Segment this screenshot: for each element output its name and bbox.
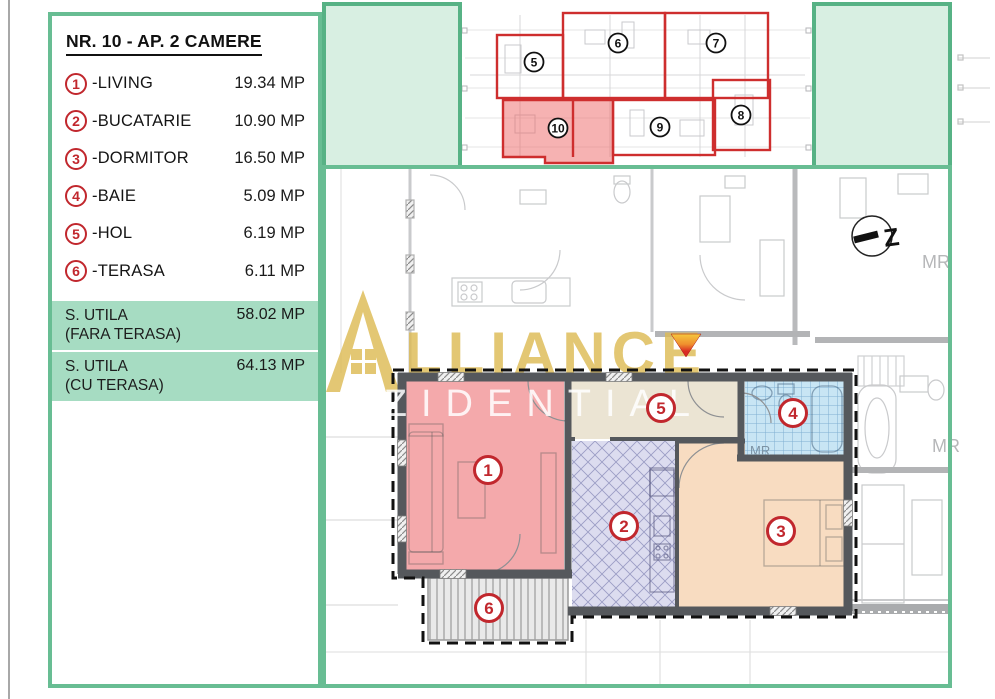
legend-row-terasa: 6 -TERASA 6.11 MP — [52, 253, 318, 291]
house-window-icon — [351, 349, 376, 374]
overview-unit-7-label: 7 — [713, 37, 720, 51]
legend-label-bucatarie: -BUCATARIE — [92, 112, 191, 131]
legend-value-baie: 5.09 MP — [244, 187, 305, 206]
total-label: S. UTILA — [65, 306, 181, 325]
legend-value-terasa: 6.11 MP — [245, 262, 305, 281]
rezidential-watermark-text: REZIDENTIAL — [303, 383, 704, 425]
mr-label-upper: MR — [922, 252, 950, 272]
legend-row-hol: 5 -HOL 6.19 MP — [52, 215, 318, 253]
overview-unit-badges: 5 6 7 8 9 10 — [525, 34, 751, 138]
total-sublabel: (CU TERASA) — [65, 376, 164, 395]
house-a-icon — [326, 290, 400, 392]
legend-badge-2: 2 — [65, 110, 87, 132]
total-label: S. UTILA — [65, 357, 164, 376]
legend-row-living: 1 -LIVING 19.34 MP — [52, 65, 318, 103]
overview-unit-6-label: 6 — [615, 37, 622, 51]
total-sublabel: (FARA TERASA) — [65, 325, 181, 344]
green-block-right — [812, 2, 952, 169]
overview-unit-9-label: 9 — [657, 121, 664, 135]
legend-value-hol: 6.19 MP — [244, 224, 305, 243]
legend-panel: NR. 10 - AP. 2 CAMERE 1 -LIVING 19.34 MP… — [48, 12, 322, 688]
overview-mini-plan: 5 6 7 8 9 10 — [462, 13, 811, 163]
north-indicator: Z — [852, 216, 901, 256]
legend-badge-3: 3 — [65, 148, 87, 170]
floorplan-page: 5 6 7 8 9 10 LLIANCE — [0, 0, 995, 699]
badge-living: 1 — [483, 461, 492, 480]
legend-value-bucatarie: 10.90 MP — [234, 112, 305, 131]
legend-room-list: 1 -LIVING 19.34 MP 2 -BUCATARIE 10.90 MP… — [52, 65, 318, 290]
north-letter: Z — [882, 223, 901, 253]
badge-baie: 4 — [788, 404, 798, 423]
total-value: 64.13 MP — [237, 357, 305, 375]
badge-bucatarie: 2 — [619, 517, 628, 536]
legend-label-baie: -BAIE — [92, 187, 136, 206]
green-block-left — [322, 2, 462, 169]
legend-row-dormitor: 3 -DORMITOR 16.50 MP — [52, 140, 318, 178]
legend-badge-4: 4 — [65, 185, 87, 207]
legend-row-bucatarie: 2 -BUCATARIE 10.90 MP — [52, 103, 318, 141]
mr-label-right: MR — [932, 436, 960, 456]
total-row-cu-terasa: S. UTILA (CU TERASA) 64.13 MP — [52, 352, 318, 401]
overview-unit-8-label: 8 — [738, 109, 745, 123]
legend-value-dormitor: 16.50 MP — [234, 149, 305, 168]
overview-unit-10-label: 10 — [551, 122, 565, 136]
mr-label-baie: MR — [750, 443, 770, 458]
total-value: 58.02 MP — [237, 306, 305, 324]
legend-badge-1: 1 — [65, 73, 87, 95]
legend-label-dormitor: -DORMITOR — [92, 149, 189, 168]
badge-terasa: 6 — [484, 599, 493, 618]
legend-row-baie: 4 -BAIE 5.09 MP — [52, 178, 318, 216]
legend-value-living: 19.34 MP — [234, 74, 305, 93]
total-row-fara-terasa: S. UTILA (FARA TERASA) 58.02 MP — [52, 301, 318, 350]
badge-hol: 5 — [656, 399, 665, 418]
legend-label-living: -LIVING — [92, 74, 153, 93]
legend-label-hol: -HOL — [92, 224, 132, 243]
legend-totals: S. UTILA (FARA TERASA) 58.02 MP S. UTILA… — [52, 301, 318, 401]
legend-badge-5: 5 — [65, 223, 87, 245]
room-dormitor — [679, 443, 844, 607]
legend-title: NR. 10 - AP. 2 CAMERE — [66, 31, 262, 56]
legend-badge-6: 6 — [65, 260, 87, 282]
overview-unit-5-label: 5 — [531, 56, 538, 70]
badge-dormitor: 3 — [776, 522, 785, 541]
legend-label-terasa: -TERASA — [92, 262, 165, 281]
